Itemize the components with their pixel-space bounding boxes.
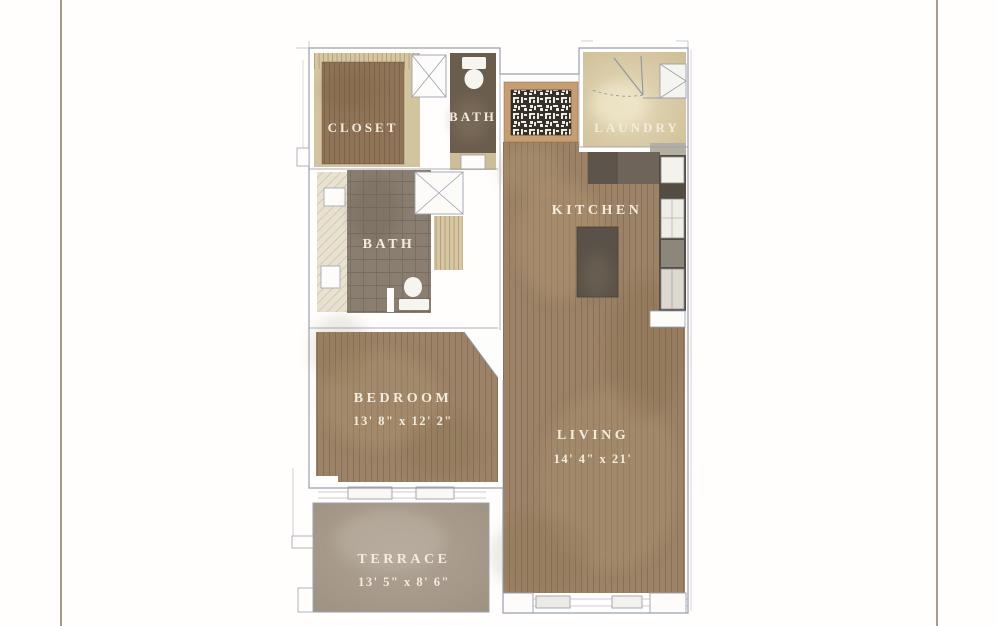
counter-end-cabinet [650, 311, 685, 327]
bedroom-window-wall [309, 482, 503, 503]
label-terrace: TERRACE [358, 552, 451, 567]
dims-terrace: 13' 5" x 8' 6" [358, 575, 450, 589]
sink-icon [321, 266, 340, 288]
entry-mosaic-rug [504, 82, 578, 142]
room-laundry [583, 52, 686, 159]
label-closet: CLOSET [328, 120, 399, 135]
floor-plan-drawing: CLOSET BATH LAUNDRY KITCHEN BATH BEDROOM… [0, 0, 998, 626]
oven-icon [661, 269, 684, 309]
label-bath-main: BATH [363, 237, 416, 252]
label-bedroom: BEDROOM [354, 391, 452, 406]
counter-segment [661, 240, 684, 267]
toilet-partition [387, 288, 394, 312]
terrace-pier [292, 536, 313, 548]
window-icon [536, 596, 570, 608]
dims-living: 14' 4" x 21' [554, 452, 633, 466]
refrigerator-icon [661, 199, 684, 238]
living-window-wall [503, 593, 688, 613]
sink-icon [324, 188, 345, 206]
label-bath-upper: BATH [449, 109, 497, 124]
label-kitchen: KITCHEN [552, 203, 643, 218]
sink-icon [461, 155, 485, 169]
label-living: LIVING [557, 428, 629, 443]
window-icon [348, 487, 392, 499]
label-laundry: LAUNDRY [594, 120, 680, 135]
window-icon [297, 148, 309, 166]
linen-cabinet-icon [412, 55, 446, 97]
dims-bedroom: 13' 8" x 12' 2" [353, 414, 453, 428]
kitchen-island-icon [577, 227, 618, 297]
cabinet-icon [661, 157, 684, 183]
room-closet [314, 53, 420, 167]
floor-plan-page: CLOSET BATH LAUNDRY KITCHEN BATH BEDROOM… [0, 0, 998, 626]
terrace-pier [298, 588, 313, 612]
wall-post [503, 593, 533, 613]
window-icon [416, 487, 454, 499]
wall-post [650, 593, 686, 613]
window-icon [612, 596, 642, 608]
shower-stall-icon [415, 172, 463, 214]
linen-shelves [434, 216, 463, 270]
